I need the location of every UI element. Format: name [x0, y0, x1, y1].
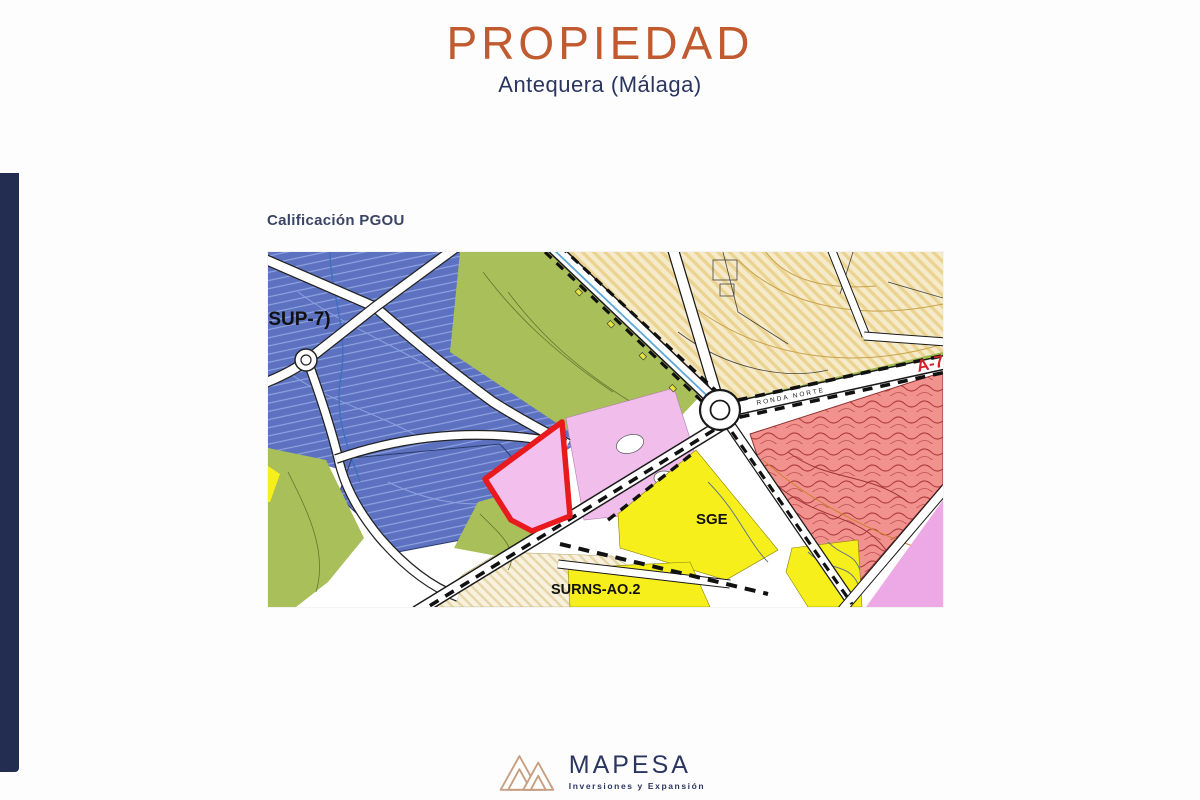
pgou-map-svg: (SUP-7) SGE SURNS-AO.2 RONDA NORTE A-7 — [268, 252, 943, 607]
mapesa-logo-icon — [495, 748, 557, 796]
label-surns: SURNS-AO.2 — [551, 582, 640, 598]
brand-name: MAPESA — [569, 753, 705, 778]
roundabout-small — [295, 349, 317, 371]
roundabout-main — [700, 390, 740, 430]
page-title: PROPIEDAD — [0, 16, 1200, 70]
footer-logo: MAPESA Inversiones y Expansión — [0, 748, 1200, 796]
label-sge: SGE — [696, 511, 728, 528]
brand-tagline: Inversiones y Expansión — [569, 781, 705, 791]
page-subtitle: Antequera (Málaga) — [0, 72, 1200, 98]
map-caption: Calificación PGOU — [267, 212, 405, 229]
slide-accent-bar — [0, 173, 19, 772]
pgou-zoning-map: (SUP-7) SGE SURNS-AO.2 RONDA NORTE A-7 — [268, 252, 943, 607]
label-sup7: (SUP-7) — [268, 309, 331, 330]
